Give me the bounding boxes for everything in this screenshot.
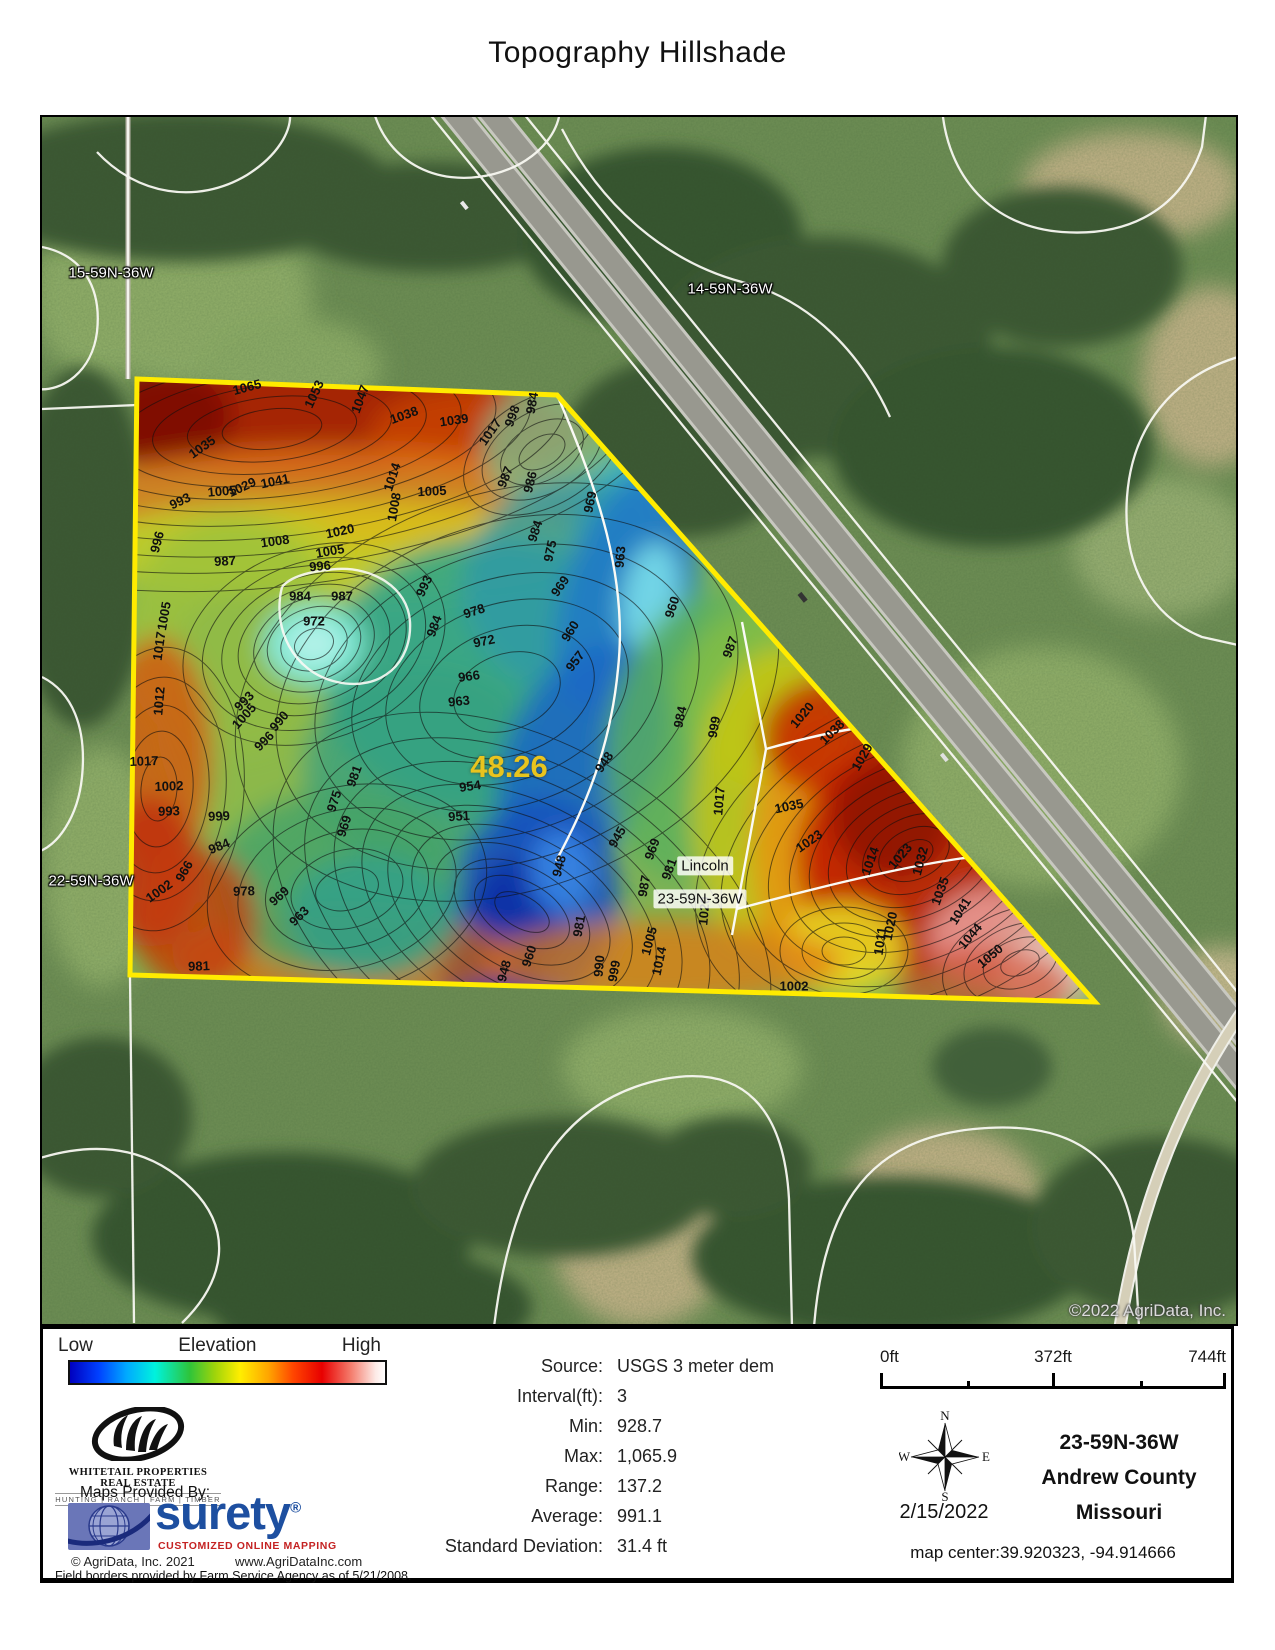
contour-elevation-label: 987	[331, 590, 353, 603]
stat-label: Source:	[403, 1356, 603, 1377]
location-state: Missouri	[1033, 1495, 1205, 1530]
contour-elevation-label: 963	[613, 546, 628, 569]
stat-value: 31.4 ft	[617, 1536, 667, 1557]
stat-label: Min:	[403, 1416, 603, 1437]
map-area: 1065105310471038103910179989841035102910…	[40, 115, 1238, 1326]
stat-label: Max:	[403, 1446, 603, 1467]
surety-globe-icon	[68, 1503, 150, 1550]
parcel-label: Lincoln	[677, 856, 733, 875]
stat-row: Average:991.1	[403, 1501, 774, 1531]
contour-elevation-label: 1012	[151, 686, 166, 716]
agridata-copyright: © AgriData, Inc. 2021	[71, 1554, 195, 1569]
stat-label: Range:	[403, 1476, 603, 1497]
contour-elevation-label: 1017	[151, 631, 168, 661]
scalebar	[880, 1371, 1226, 1389]
scalebar-labels: 0ft 372ft 744ft	[880, 1347, 1226, 1367]
stat-value: USGS 3 meter dem	[617, 1356, 774, 1377]
stats-table: Source:USGS 3 meter demInterval(ft):3Min…	[403, 1351, 774, 1561]
contour-elevation-label: 993	[158, 804, 180, 818]
stat-value: 137.2	[617, 1476, 662, 1497]
map-watermark: ©2022 AgriData, Inc.	[1069, 1301, 1226, 1321]
contour-elevation-label: 999	[706, 715, 723, 739]
contour-elevation-label: 999	[208, 809, 230, 823]
parcel-label: 15-59N-36W	[68, 264, 153, 281]
stat-value: 991.1	[617, 1506, 662, 1527]
scalebar-tick-label: 0ft	[880, 1347, 899, 1367]
legend-low-label: Low	[58, 1335, 93, 1357]
contour-elevation-label: 1039	[439, 412, 469, 429]
contour-elevation-label: 1017	[711, 786, 726, 816]
compass-east-label: E	[982, 1449, 990, 1464]
stat-row: Standard Deviation:31.4 ft	[403, 1531, 774, 1561]
whitetail-antler-icon	[88, 1407, 188, 1461]
field-borders-note: Field borders provided by Farm Service A…	[55, 1569, 411, 1583]
map-date: 2/15/2022	[879, 1501, 1009, 1524]
contour-elevation-label: 1005	[417, 484, 447, 498]
contour-elevation-label: 978	[233, 884, 255, 898]
agridata-url: www.AgriDataInc.com	[235, 1554, 362, 1569]
contour-elevation-label: 984	[289, 590, 311, 603]
compass-rose-icon: N E S W	[899, 1409, 991, 1501]
legend-title: Elevation	[178, 1335, 256, 1357]
stat-row: Min:928.7	[403, 1411, 774, 1441]
stat-row: Interval(ft):3	[403, 1381, 774, 1411]
compass-west-label: W	[899, 1449, 911, 1464]
acreage-label: 48.26	[470, 749, 548, 785]
contour-elevation-label: 951	[448, 809, 471, 823]
stat-value: 3	[617, 1386, 627, 1407]
stat-row: Source:USGS 3 meter dem	[403, 1351, 774, 1381]
contour-elevation-label: 1017	[129, 754, 158, 768]
location-county: Andrew County	[1033, 1460, 1205, 1495]
contour-elevation-label: 1002	[780, 980, 809, 993]
parcel-label: 14-59N-36W	[687, 280, 772, 297]
surety-logo-text: surety®	[155, 1489, 300, 1536]
scalebar-tick-label: 372ft	[1034, 1347, 1072, 1367]
contour-elevation-label: 1002	[154, 779, 183, 793]
compass-north-label: N	[940, 1409, 950, 1423]
stat-label: Interval(ft):	[403, 1386, 603, 1407]
contour-elevation-label: 990	[592, 955, 607, 978]
contour-elevation-label: 981	[571, 914, 588, 938]
parcel-label: 23-59N-36W	[653, 889, 746, 908]
registered-mark: ®	[290, 1499, 300, 1516]
stat-row: Max:1,065.9	[403, 1441, 774, 1471]
map-center-coordinates: map center:39.920323, -94.914666	[893, 1543, 1193, 1563]
contour-elevation-label: 963	[448, 693, 471, 708]
location-trs: 23-59N-36W	[1033, 1425, 1205, 1460]
contour-elevation-label: 1008	[260, 533, 290, 550]
contour-elevation-label: 987	[636, 874, 653, 898]
footer-panel: Low Elevation High WHITETAIL PROPERTIES …	[40, 1326, 1234, 1583]
contour-elevation-label: 981	[188, 959, 210, 973]
scalebar-tick-label: 744ft	[1188, 1347, 1226, 1367]
location-block: 23-59N-36W Andrew County Missouri	[1033, 1425, 1205, 1530]
stat-value: 1,065.9	[617, 1446, 677, 1467]
stat-row: Range:137.2	[403, 1471, 774, 1501]
elevation-legend: Low Elevation High	[58, 1335, 381, 1357]
stat-label: Average:	[403, 1506, 603, 1527]
page-title: Topography Hillshade	[0, 36, 1275, 70]
contour-elevation-label: 984	[524, 391, 541, 415]
stat-value: 928.7	[617, 1416, 662, 1437]
legend-high-label: High	[342, 1335, 381, 1357]
stat-label: Standard Deviation:	[403, 1536, 603, 1557]
contour-elevation-label: 999	[606, 959, 623, 983]
contour-elevation-label: 966	[457, 668, 480, 684]
aerial-map-svg	[42, 117, 1236, 1324]
surety-tagline: CUSTOMIZED ONLINE MAPPING	[158, 1540, 337, 1552]
compass-south-label: S	[941, 1489, 948, 1501]
surety-wordmark: surety	[155, 1486, 290, 1539]
elevation-gradient-bar	[68, 1360, 387, 1385]
contour-elevation-label: 972	[303, 615, 325, 628]
contour-elevation-label: 987	[214, 554, 236, 568]
contour-elevation-label: 1011	[872, 926, 889, 956]
map-report-page: Topography Hillshade	[0, 0, 1275, 1650]
parcel-label: 22-59N-36W	[48, 872, 133, 889]
contour-elevation-label: 1005	[207, 483, 237, 498]
contour-elevation-label: 996	[309, 559, 332, 574]
